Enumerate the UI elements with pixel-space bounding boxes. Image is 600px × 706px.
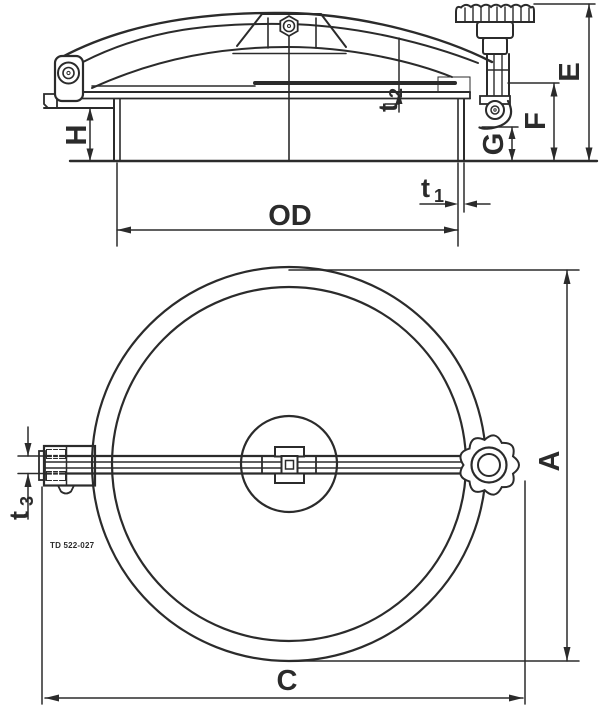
dim-t1: t 1 <box>420 163 490 246</box>
dim-label-G: G <box>478 133 510 156</box>
dim-label-E: E <box>554 62 586 81</box>
dim-G: G <box>478 127 518 161</box>
dim-t3: t 3 <box>4 427 45 520</box>
dim-label-C: C <box>277 665 298 697</box>
dim-OD: OD <box>117 163 458 246</box>
dim-t2: t 2 <box>373 38 406 112</box>
center-bridge <box>237 14 346 161</box>
hinge-bracket-plan <box>39 446 95 494</box>
gasket-band <box>92 77 470 92</box>
dim-label-t2-sub: 2 <box>386 88 406 98</box>
manway-drawing: E F G H <box>0 0 600 706</box>
side-view: E F G H <box>44 4 597 246</box>
handwheel-icon <box>456 5 534 22</box>
dim-label-t1: t <box>421 173 430 203</box>
hinge-bracket-side <box>55 56 83 101</box>
dim-label-t3: t <box>4 511 34 520</box>
plan-view: TD 522-027 t 3 A <box>4 267 579 704</box>
handwheel-plan-icon <box>460 435 519 494</box>
dim-C: C <box>42 481 525 704</box>
dim-label-A: A <box>534 450 566 471</box>
crossbar <box>45 456 461 474</box>
dim-label-OD: OD <box>268 200 312 232</box>
dim-F: F <box>508 83 559 161</box>
flange <box>44 92 470 108</box>
center-clamp <box>275 447 304 483</box>
dim-label-H: H <box>61 125 93 146</box>
dim-A: A <box>289 270 579 661</box>
dim-label-F: F <box>520 112 552 130</box>
dome-cover <box>62 13 492 88</box>
dim-label-t1-sub: 1 <box>434 186 444 206</box>
dim-label-t3-sub: 3 <box>17 496 37 506</box>
part-number-note: TD 522-027 <box>50 541 95 550</box>
dim-H: H <box>61 108 94 161</box>
dim-label-t2: t <box>373 103 403 112</box>
drawing-canvas: E F G H <box>0 0 600 706</box>
clamp-assembly <box>456 5 534 129</box>
